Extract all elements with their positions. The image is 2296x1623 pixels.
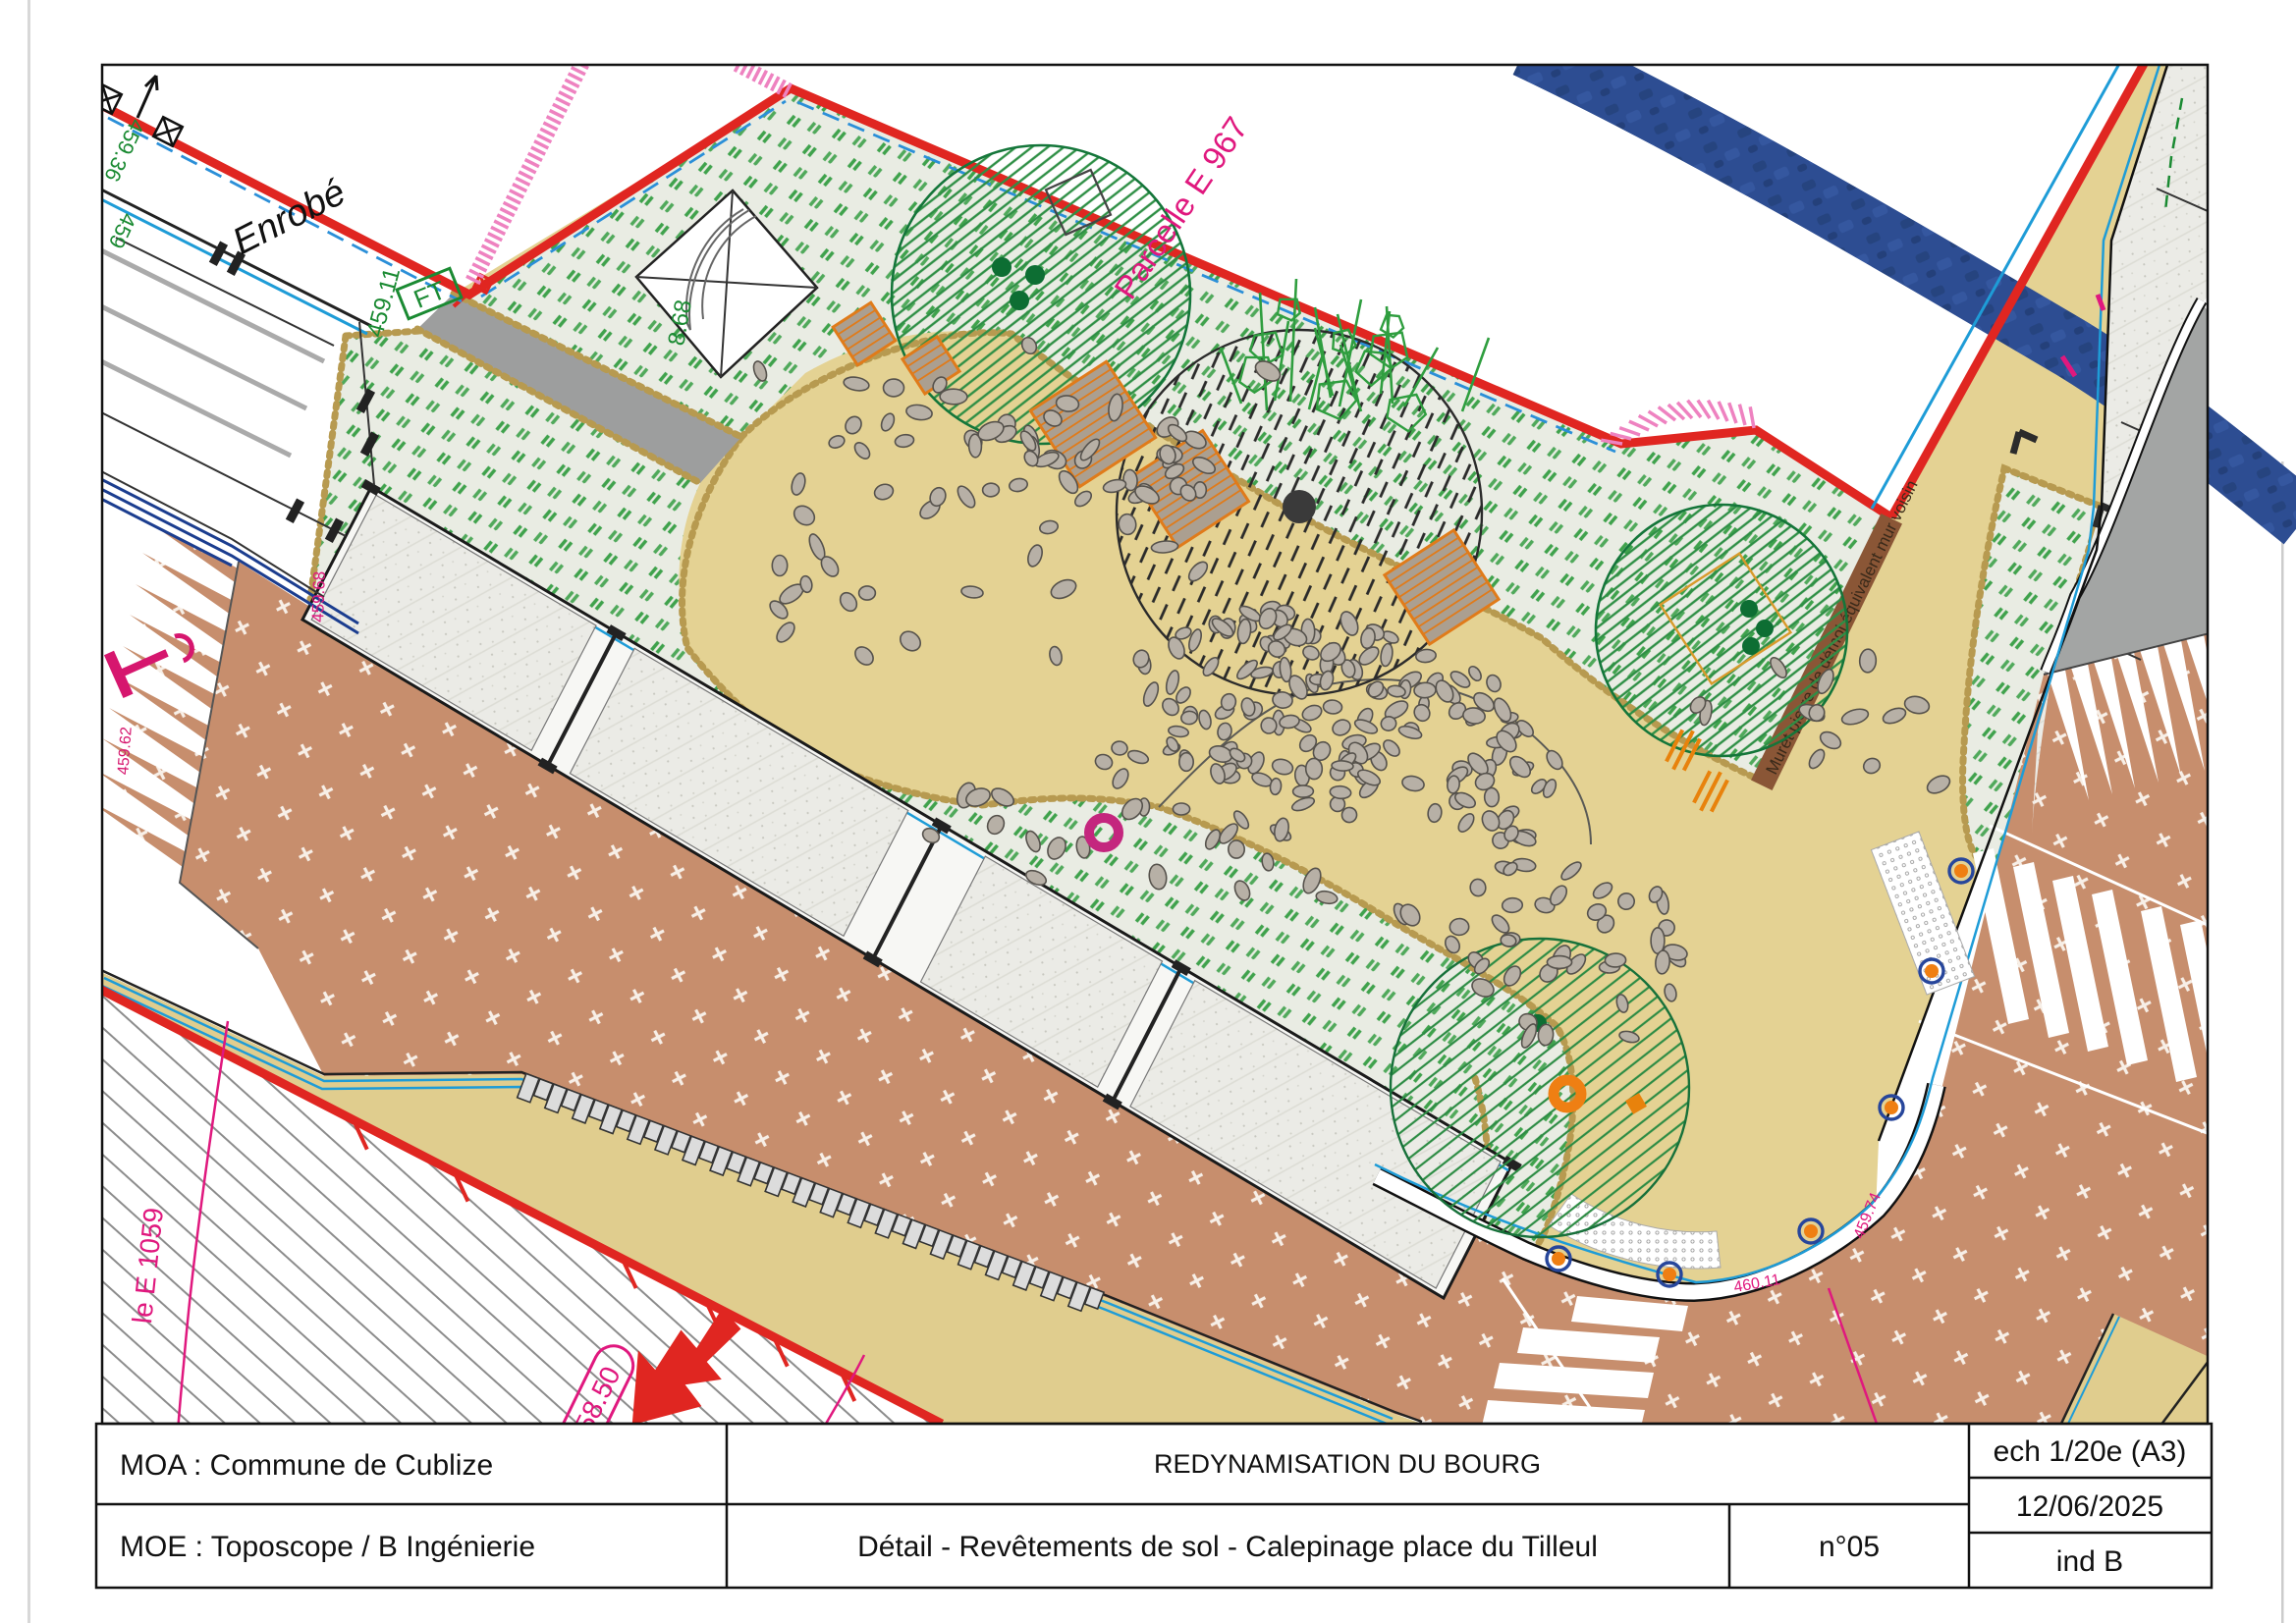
svg-text:REDYNAMISATION DU BOURG: REDYNAMISATION DU BOURG [1154, 1449, 1541, 1479]
svg-text:ech 1/20e (A3): ech 1/20e (A3) [1994, 1435, 2187, 1468]
svg-text:12/06/2025: 12/06/2025 [2016, 1490, 2163, 1523]
svg-text:Détail - Revêtements de sol -: Détail - Revêtements de sol - Calepinage… [857, 1531, 1598, 1563]
svg-text:ind B: ind B [2056, 1545, 2123, 1578]
svg-text:MOA : Commune de Cublize: MOA : Commune de Cublize [120, 1449, 493, 1482]
svg-text:459.62: 459.62 [115, 727, 135, 776]
svg-text:MOE : Toposcope / B Ingénierie: MOE : Toposcope / B Ingénierie [120, 1531, 535, 1563]
svg-text:n°05: n°05 [1819, 1531, 1880, 1563]
svg-text:459.68: 459.68 [308, 570, 329, 622]
